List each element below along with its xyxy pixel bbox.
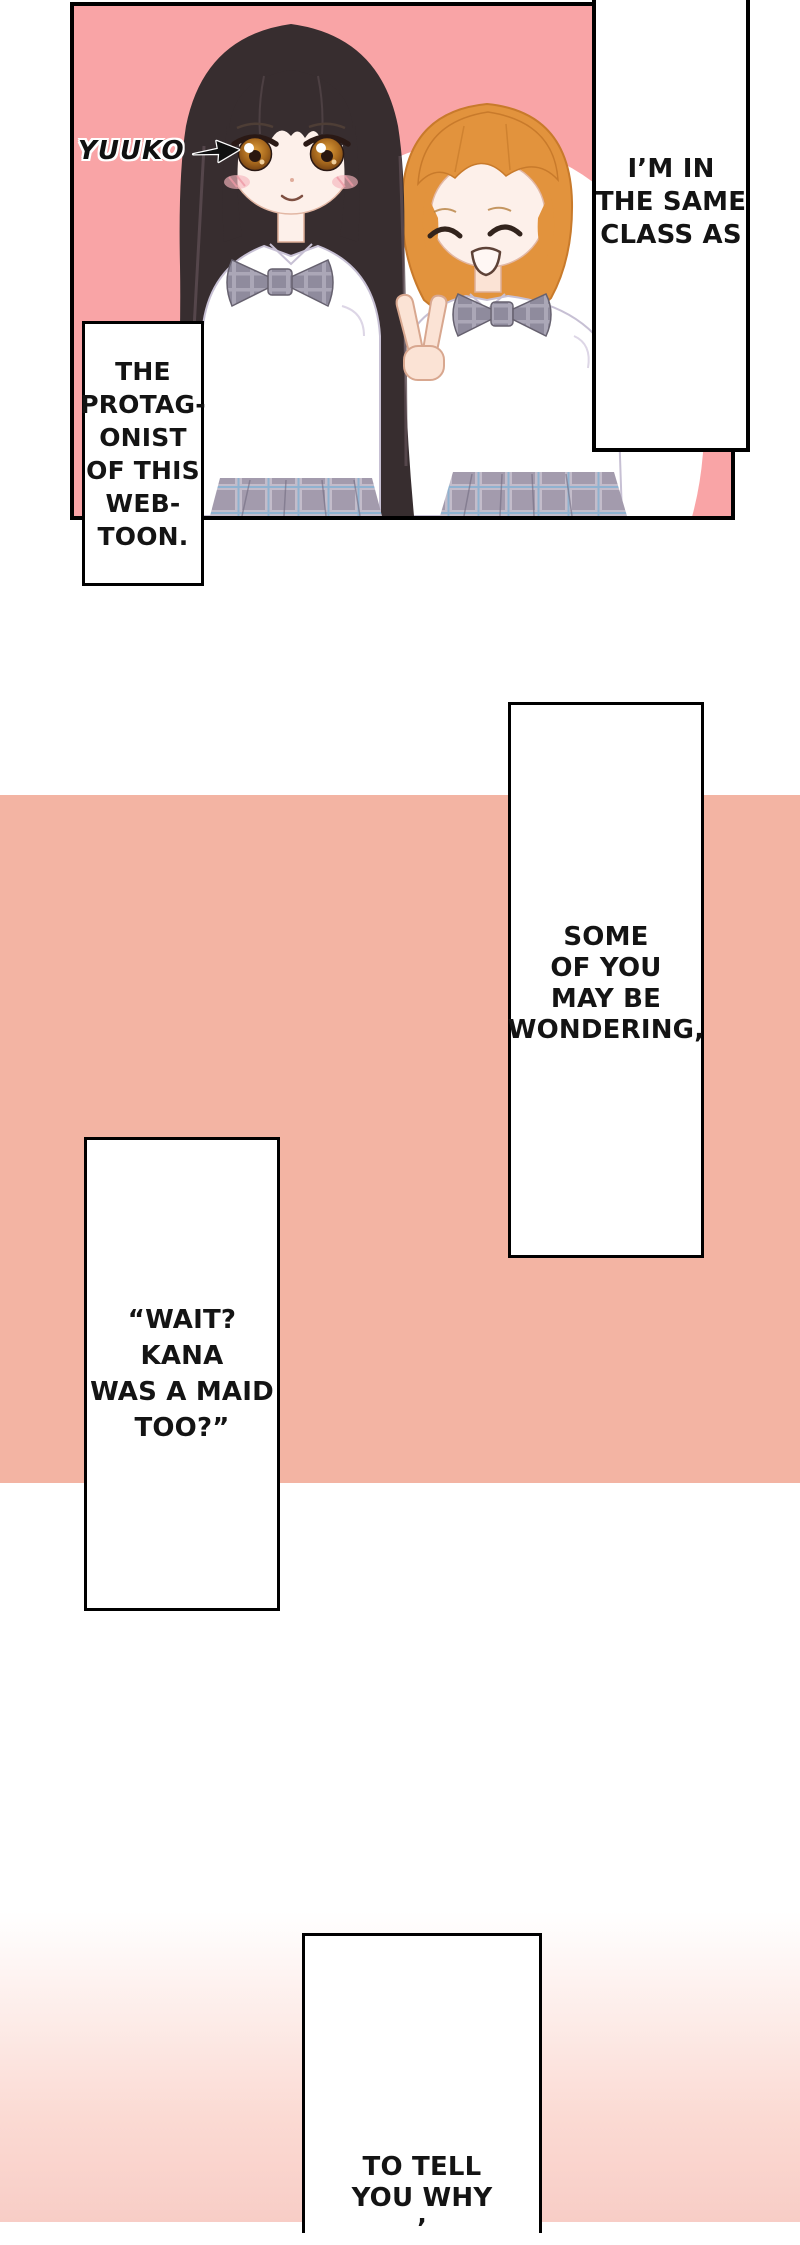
right-arrow-icon <box>190 137 242 165</box>
speech-line: THE SAME <box>596 186 746 219</box>
speech-box-protagonist: THE PROTAG- ONIST OF THIS WEB- TOON. <box>82 321 204 586</box>
speech-line: WEB- <box>106 487 181 520</box>
speech-line: I’M IN <box>627 153 714 186</box>
speech-box-tell: TO TELL YOU WHY ’ <box>302 1933 542 2233</box>
speech-line: KANA <box>141 1338 224 1374</box>
speech-line: CLASS AS <box>600 219 742 252</box>
speech-line: MAY BE <box>551 984 661 1015</box>
speech-line: OF THIS <box>86 454 200 487</box>
speech-line: ONIST <box>99 421 187 454</box>
character-name-label: YUUKO <box>78 136 242 166</box>
speech-line: TO TELL <box>363 2152 482 2183</box>
speech-line: “WAIT? <box>128 1302 236 1338</box>
speech-box-wait: “WAIT? KANA WAS A MAID TOO?” <box>84 1137 280 1611</box>
webtoon-page: { "page": {"width": 800, "height": 2222}… <box>0 0 800 2222</box>
speech-line: ’ <box>417 2214 427 2245</box>
speech-line: WONDERING, <box>508 1015 705 1046</box>
speech-line: TOON. <box>98 520 189 553</box>
speech-line: THE <box>115 355 171 388</box>
speech-box-wondering: SOME OF YOU MAY BE WONDERING, <box>508 702 704 1258</box>
speech-line: TOO?” <box>134 1410 229 1446</box>
speech-line: YOU WHY <box>352 2183 493 2214</box>
speech-bubble-class: I’M IN THE SAME CLASS AS <box>592 0 750 452</box>
speech-line: SOME <box>563 922 648 953</box>
character-yuuko <box>168 24 414 516</box>
speech-line: PROTAG- <box>80 388 206 421</box>
speech-line: WAS A MAID <box>90 1374 274 1410</box>
yuuko-name-text: YUUKO <box>78 136 185 166</box>
speech-line: OF YOU <box>550 953 661 984</box>
